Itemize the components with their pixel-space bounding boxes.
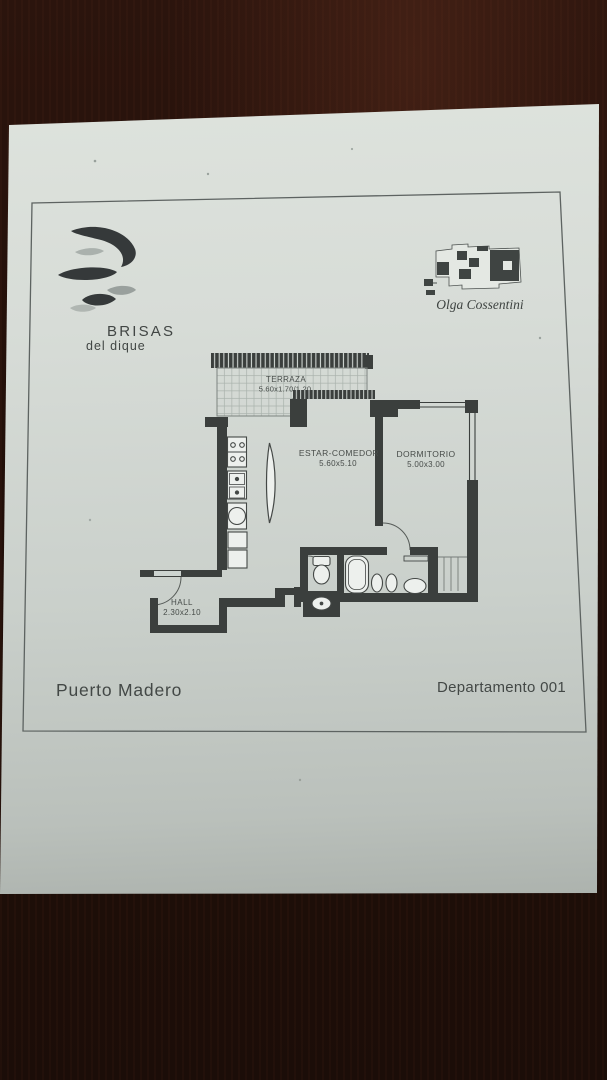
logo-tail-faint	[70, 305, 96, 312]
sink-drain	[235, 491, 238, 494]
speck	[207, 173, 209, 175]
hall-label: HALL	[171, 598, 193, 607]
terraza-tile-floor	[217, 390, 293, 416]
bedroom-dimensions: 5.00x3.00	[407, 460, 445, 469]
wall	[465, 400, 478, 413]
entry-door-leaf	[154, 571, 181, 576]
kitchen-fixtures	[228, 437, 248, 568]
architect-name: Olga Cossentini	[436, 297, 524, 312]
vanity-basin-icon	[404, 579, 426, 594]
basin-drain	[320, 602, 323, 605]
key-plan-room	[469, 258, 479, 267]
sink-drain	[235, 477, 238, 480]
wall	[217, 417, 227, 570]
key-plan-annex	[424, 279, 433, 286]
wall	[219, 598, 275, 607]
speck	[94, 160, 97, 163]
wall-pillar	[290, 399, 307, 427]
wall	[467, 480, 478, 602]
floor-plan: TERRAZA 5.60x1.70/1.20	[140, 353, 478, 633]
footer-unit: Departamento 001	[437, 679, 566, 696]
oven-box	[228, 503, 247, 529]
bidet-icon	[386, 574, 397, 592]
key-plan-room	[477, 246, 488, 251]
speck	[299, 779, 301, 781]
brand-name: BRISAS	[107, 323, 175, 340]
living-room-dimensions: 5.60x5.10	[319, 459, 357, 468]
kitchen-cabinet-icon	[228, 550, 247, 568]
logo-crescent	[71, 227, 136, 267]
terraza-label: TERRAZA	[266, 375, 306, 384]
vanity-counter	[404, 556, 428, 561]
bedroom-label: DORMITORIO	[396, 449, 455, 459]
photo-scene: BRISAS del dique Olga Cossentini TERRAZ	[0, 0, 607, 1080]
logo-smudge	[75, 248, 104, 255]
footer-location: Puerto Madero	[56, 680, 182, 700]
logo-crescent-gray	[107, 286, 136, 295]
toilet-icon	[372, 574, 383, 592]
logo-ellipse-dark	[82, 294, 116, 306]
bedroom-closet	[438, 557, 467, 591]
wall	[275, 588, 285, 607]
terraza-railing-step	[365, 355, 373, 369]
speck	[539, 337, 541, 339]
bathroom-fixtures	[303, 556, 428, 617]
wall	[150, 625, 227, 633]
brand-tagline: del dique	[86, 339, 146, 353]
curved-kitchen-door	[267, 443, 276, 523]
wall	[300, 547, 387, 555]
wall	[337, 555, 344, 593]
wall	[285, 588, 302, 595]
bathtub-inner	[349, 560, 366, 590]
speck	[351, 148, 353, 150]
speck	[89, 519, 91, 521]
refrigerator-icon	[228, 532, 247, 548]
wc-toilet-tank	[313, 557, 330, 566]
brisas-spiral-logo-icon	[58, 227, 136, 312]
page-artwork: BRISAS del dique Olga Cossentini TERRAZ	[0, 0, 607, 1080]
terraza-railing	[211, 353, 369, 368]
key-plan-room	[437, 262, 449, 275]
building-key-plan-icon	[424, 244, 521, 295]
living-window-wall	[293, 390, 375, 399]
key-plan-room	[457, 251, 467, 260]
hall-dimensions: 2.30x2.10	[163, 608, 201, 617]
key-plan-room	[503, 261, 512, 270]
wc-toilet-icon	[314, 565, 330, 584]
wall	[375, 417, 383, 526]
key-plan-room	[459, 269, 471, 279]
wall	[372, 400, 420, 409]
bedroom-door-arc	[383, 523, 410, 550]
living-room-label: ESTAR-COMEDOR	[299, 448, 379, 458]
key-plan-annex	[426, 290, 435, 295]
logo-lens-dark	[58, 267, 117, 280]
